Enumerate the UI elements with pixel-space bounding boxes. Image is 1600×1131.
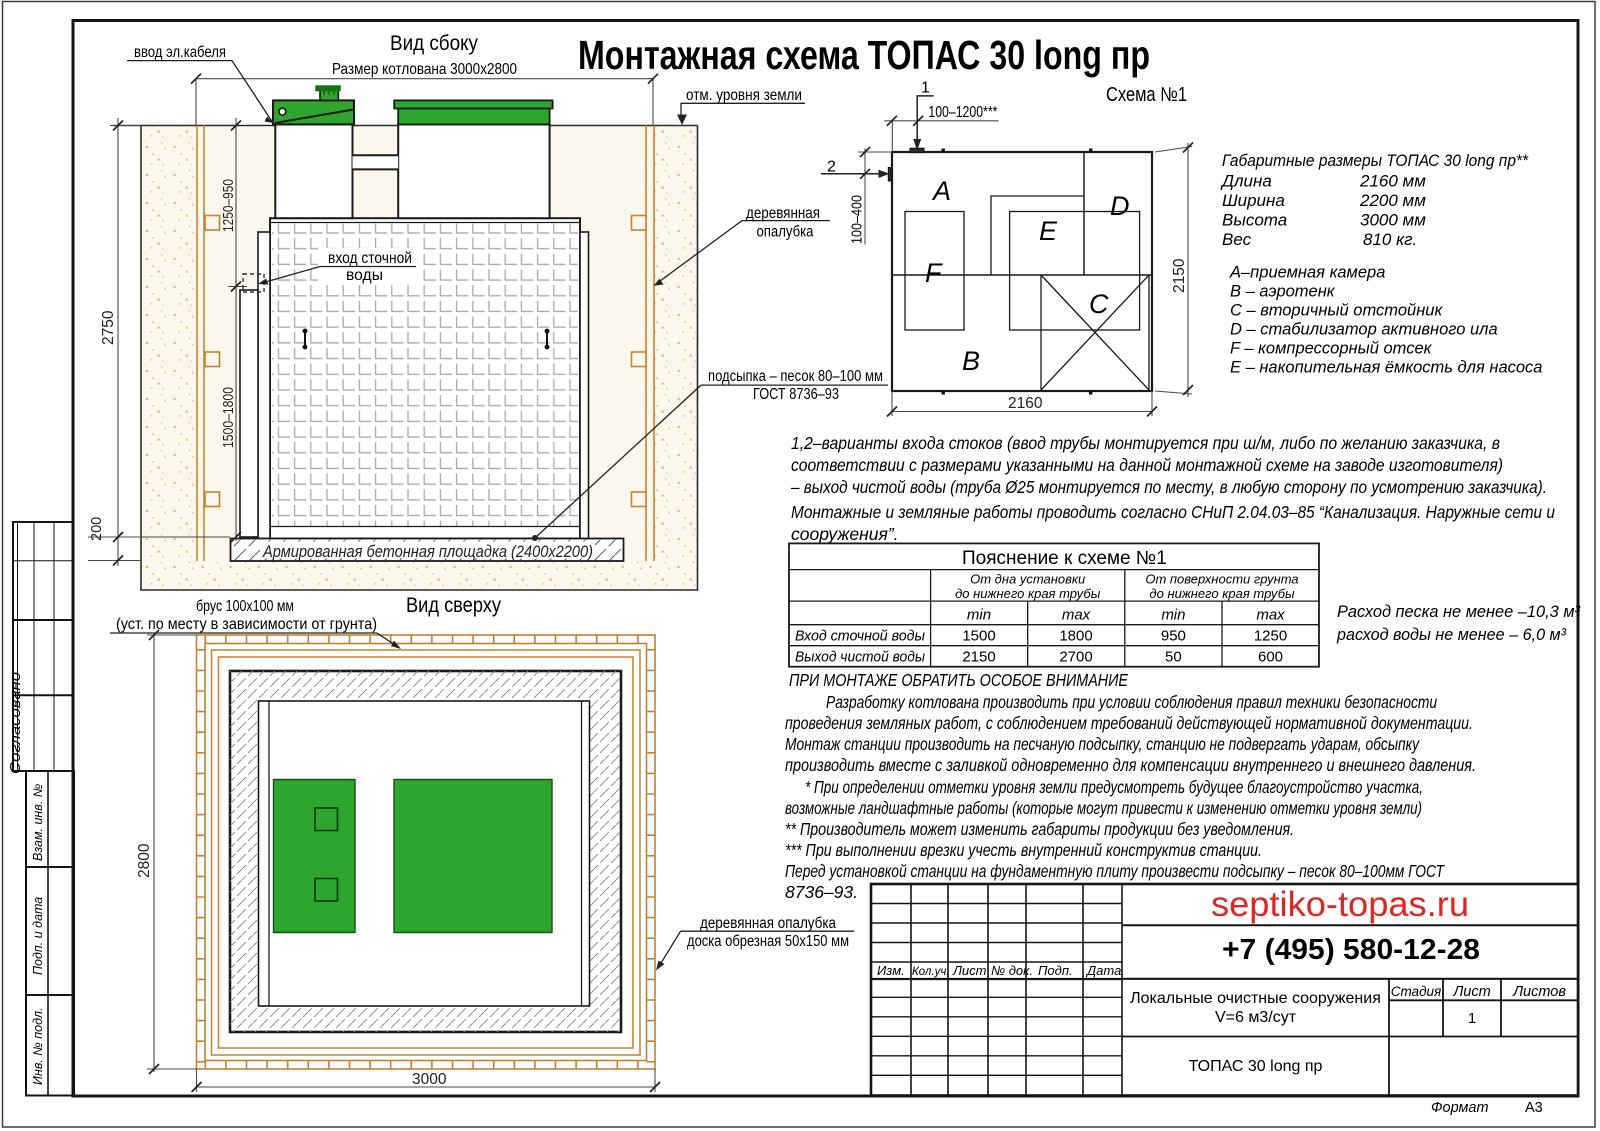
svg-text:Выход чистой воды: Выход чистой воды [795,649,925,666]
svg-text:Монтажная схема ТОПАС 30 long: Монтажная схема ТОПАС 30 long пр [578,32,1150,78]
svg-text:доска обрезная 50х150 мм: доска обрезная 50х150 мм [687,933,849,950]
svg-text:Изм.: Изм. [877,963,905,978]
svg-text:Вид сверху: Вид сверху [406,594,501,617]
svg-text:Армированная бетонная площадка: Армированная бетонная площадка (2400х220… [262,543,593,561]
svg-text:1: 1 [1468,1010,1476,1027]
svg-text:8736–93.: 8736–93. [785,882,858,902]
svg-text:(уст. по месту в зависимости о: (уст. по месту в зависимости от грунта) [116,616,377,633]
svg-text:проведения земляных работ, с с: проведения земляных работ, с соблюдением… [785,713,1473,733]
svg-text:А–приемная камера: А–приемная камера [1229,264,1385,282]
svg-text:– выход чистой воды (труба Ø25: – выход чистой воды (труба Ø25 монтирует… [790,477,1547,497]
svg-text:max: max [1062,607,1091,624]
svg-text:2800: 2800 [136,843,153,878]
svg-text:2750: 2750 [100,310,117,345]
svg-text:** Производитель может изменит: ** Производитель может изменить габариты… [785,819,1294,839]
svg-text:1500–1800: 1500–1800 [220,387,237,448]
svg-text:2160: 2160 [1008,395,1043,412]
svg-text:Расход песка не менее –10,3 м³: Расход песка не менее –10,3 м³ [1337,602,1581,621]
svg-text:до нижнего края трубы: до нижнего края трубы [955,586,1101,601]
svg-text:Подп.: Подп. [1038,963,1073,978]
svg-text:вход сточной: вход сточной [328,250,412,267]
svg-text:№ док.: № док. [991,963,1033,978]
svg-text:Монтажные и земляные работы пр: Монтажные и земляные работы проводить со… [791,502,1555,522]
svg-text:1500: 1500 [962,628,995,645]
svg-text:Стадия: Стадия [1391,984,1442,999]
svg-text:min: min [1161,607,1185,624]
svg-text:Кол.уч.: Кол.уч. [912,966,950,978]
svg-text:возможные ландшафтные работы (: возможные ландшафтные работы (которые мо… [785,798,1422,818]
svg-text:соответствии с размерами указа: соответствии с размерами указанными на д… [791,455,1503,475]
svg-text:до нижнего края трубы: до нижнего края трубы [1149,586,1295,601]
svg-text:Схема №1: Схема №1 [1106,84,1187,106]
svg-text:сооружения”.: сооружения”. [791,524,899,544]
svg-text:Листов: Листов [1512,984,1566,1000]
svg-text:2150: 2150 [1171,258,1188,293]
svg-text:Перед установкой станции на фу: Перед установкой станции на фундаментную… [785,861,1445,881]
svg-text:Локальные очистные сооружения: Локальные очистные сооружения [1130,990,1381,1007]
svg-text:Согласовано: Согласовано [8,672,24,774]
svg-text:min: min [967,607,991,624]
svg-text:брус 100х100 мм: брус 100х100 мм [196,598,294,615]
svg-text:600: 600 [1258,649,1283,666]
svg-text:Взам. инв. №: Взам. инв. № [31,783,45,861]
svg-text:Формат: Формат [1431,1100,1489,1116]
svg-text:расход воды не менее – 6,0 м³: расход воды не менее – 6,0 м³ [1336,625,1567,644]
svg-text:1250–950: 1250–950 [220,179,237,232]
svg-text:A: A [931,176,951,206]
svg-text:2700: 2700 [1059,649,1092,666]
svg-text:Ширина: Ширина [1222,191,1285,210]
svg-text:подсыпка – песок 80–100 мм: подсыпка – песок 80–100 мм [708,368,883,385]
svg-text:2160 мм: 2160 мм [1359,172,1426,191]
svg-text:деревянная: деревянная [746,205,820,222]
svg-text:Дата: Дата [1085,963,1121,978]
svg-text:отм. уровня земли: отм. уровня земли [686,87,802,104]
svg-text:А3: А3 [1525,1100,1543,1116]
svg-text:950: 950 [1161,628,1186,645]
svg-text:1,2–варианты входа стоков (вв: 1,2–варианты входа стоков (ввод трубы мо… [791,433,1500,453]
svg-text:Лист: Лист [952,963,987,978]
svg-text:Высота: Высота [1222,211,1287,230]
svg-text:ТОПАС 30 long пр: ТОПАС 30 long пр [1189,1058,1323,1075]
svg-text:Лист: Лист [1452,984,1490,1000]
svg-text:3000 мм: 3000 мм [1360,211,1426,230]
svg-text:1: 1 [921,80,930,97]
svg-text:100–1200***: 100–1200*** [928,104,997,121]
svg-text:1250: 1250 [1254,628,1287,645]
svg-text:*** При выполнении врезки учес: *** При выполнении врезки учесть внутрен… [785,840,1262,860]
svg-text:C: C [1089,289,1109,319]
svg-text:Размер котлована 3000х2800: Размер котлована 3000х2800 [332,61,517,78]
svg-text:ГОСТ 8736–93: ГОСТ 8736–93 [753,386,839,403]
svg-text:В – аэротенк: В – аэротенк [1230,283,1336,301]
svg-text:1800: 1800 [1059,628,1092,645]
svg-text:max: max [1256,607,1285,624]
svg-text:V=6 м3/сут: V=6 м3/сут [1215,1009,1297,1026]
svg-text:Инв. № подл.: Инв. № подл. [31,1007,45,1085]
svg-text:Длина: Длина [1220,172,1272,191]
svg-text:200: 200 [89,517,105,541]
svg-text:D: D [1110,191,1130,221]
svg-text:Е – накопительная ёмкость для: Е – накопительная ёмкость для насоса [1230,359,1543,377]
svg-text:Пояснение к схеме №1: Пояснение к схеме №1 [962,548,1167,569]
svg-text:воды: воды [346,267,383,284]
svg-text:3000: 3000 [412,1071,447,1088]
svg-text:ПРИ МОНТАЖЕ ОБРАТИТЬ ОСОБОЕ ВН: ПРИ МОНТАЖЕ ОБРАТИТЬ ОСОБОЕ ВНИМАНИЕ [789,670,1128,690]
svg-text:От дна установки: От дна установки [970,572,1085,587]
svg-text:F: F [925,258,943,288]
svg-text:Подп. и дата: Подп. и дата [31,897,45,975]
svg-text:От поверхности грунта: От поверхности грунта [1145,572,1298,587]
svg-text:производить вместе с заливкой: производить вместе с заливкой одновремен… [785,755,1476,775]
svg-text:Вес: Вес [1222,230,1252,249]
svg-text:D – стабилизатор активного ил: D – стабилизатор активного ила [1230,321,1498,339]
svg-text:100–400: 100–400 [849,195,866,244]
svg-text:2200 мм: 2200 мм [1359,191,1426,210]
svg-text:Вид сбоку: Вид сбоку [390,32,478,55]
svg-text:2: 2 [827,159,836,176]
svg-text:Разработку котлована производи: Разработку котлована производить при усл… [826,692,1437,712]
svg-text:* При определении отметки уров: * При определении отметки уровня земли п… [805,777,1423,797]
svg-text:Монтаж станции производить на: Монтаж станции производить на песчаную п… [785,734,1420,754]
svg-text:F – компрессорный отсек: F – компрессорный отсек [1230,340,1433,358]
svg-text:septiko-topas.ru: septiko-topas.ru [1211,885,1469,924]
svg-text:Габаритные размеры ТОПАС 30 l: Габаритные размеры ТОПАС 30 long пр** [1222,151,1529,170]
svg-text:Вход сточной воды: Вход сточной воды [795,628,925,645]
svg-text:50: 50 [1165,649,1182,666]
svg-text:+7 (495) 580-12-28: +7 (495) 580-12-28 [1222,934,1480,966]
svg-text:E: E [1039,216,1058,246]
svg-text:опалубка: опалубка [757,224,814,241]
svg-text:B: B [962,346,980,376]
svg-text:ввод эл.кабеля: ввод эл.кабеля [134,44,226,61]
svg-text:С – вторичный отстойник: С – вторичный отстойник [1230,302,1443,320]
svg-text:деревянная опалубка: деревянная опалубка [700,915,836,932]
svg-text:810 кг.: 810 кг. [1363,230,1417,249]
svg-text:2150: 2150 [962,649,995,666]
